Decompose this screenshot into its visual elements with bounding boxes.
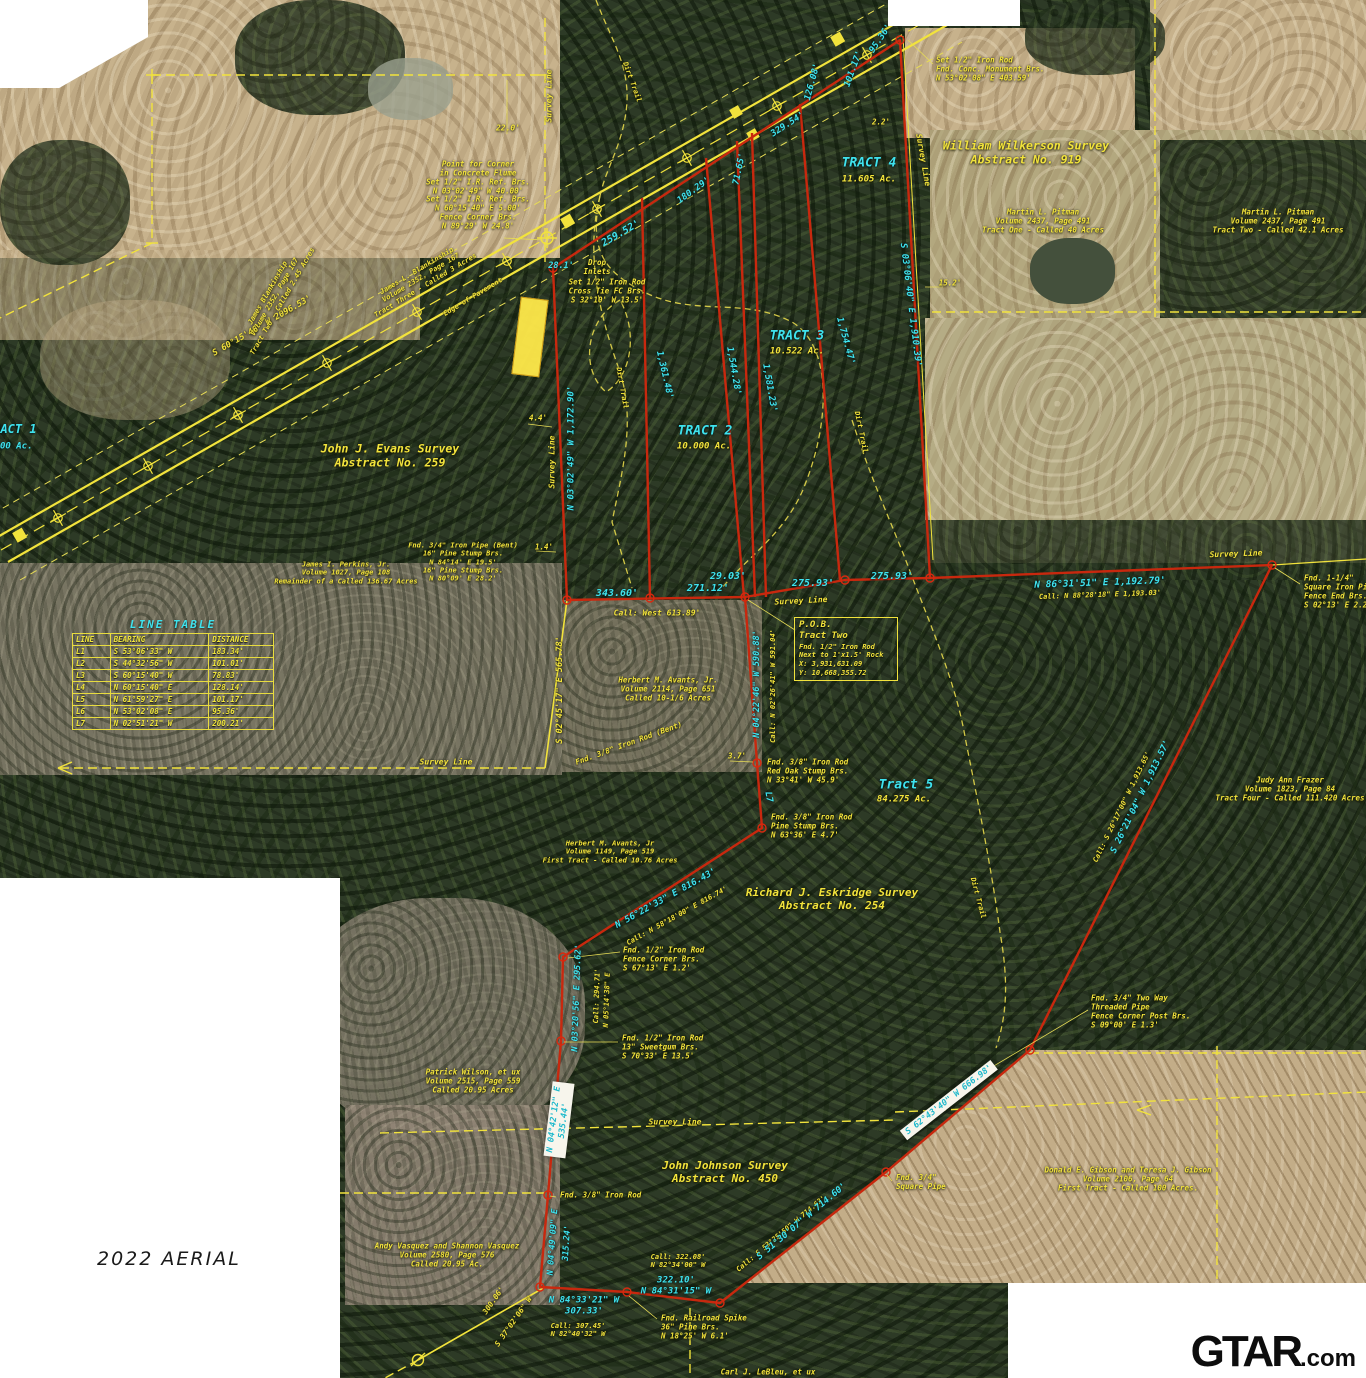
map-annotations: Survey Line22.0'Point for Cornerin Concr… — [0, 0, 1366, 1378]
note-fnd-34-square-pipe: Fnd. 3/4"Square Pipe — [896, 1174, 946, 1192]
dim-180-29: 180.29' — [676, 176, 713, 207]
note-set-rod-cross-tie: Set 1/2" Iron RodCross Tie FC Brs.S 32°1… — [569, 279, 646, 306]
note-frazer: Judy Ann FrazerVolume 1823, Page 84Tract… — [1215, 777, 1364, 804]
dim-1172-90: N 03°02'49" W 1,172.90' — [567, 386, 578, 511]
dim-590-88: N 04°22'46" W 590.88' — [752, 630, 762, 737]
survey-line-label-s1: Survey Line — [649, 1117, 702, 1126]
note-call-591-04: Call: N 02°26'41" W 591.04' — [769, 629, 777, 743]
survey-line-label-east: Survey Line — [914, 133, 932, 187]
label-dirt-trail-4: Dirt Trail — [969, 877, 988, 920]
dim-343-60: 343.60' — [596, 588, 638, 600]
note-wilson: Patrick Wilson, et uxVolume 2515, Page 5… — [426, 1069, 521, 1096]
dim-126-08: 126.08' — [803, 62, 823, 101]
survey-line-label-east2: Survey Line — [1209, 548, 1262, 559]
dim-101-17: 101.17' — [843, 49, 866, 88]
label-johnson-survey: John Johnson SurveyAbstract No. 450 — [662, 1160, 788, 1186]
note-railroad-spike: Fnd. Railroad Spike36" Pine Brs.N 18°25'… — [661, 1315, 747, 1342]
dim-n04-49-09: N 04°49'09" E — [546, 1208, 561, 1275]
dim-71-65: 71.65' — [731, 152, 748, 186]
aerial-caption: 2022 AERIAL — [97, 1248, 241, 1270]
label-tract-5: Tract 5 — [879, 777, 934, 792]
note-gibson: Donald E. Gibson and Teresa J. GibsonVol… — [1044, 1167, 1211, 1194]
label-dirt-trail-1: Dirt Trail — [621, 61, 643, 103]
dim-714-60: S 51°30'07" W 714.60' — [755, 1181, 849, 1262]
note-drop-inlets: DropInlets — [583, 259, 610, 277]
note-call-1193-03: Call: N 88°28'18" E 1,193.03' — [1039, 589, 1161, 602]
dim-1910-39: S 03°06'40" E 1,910.39' — [897, 243, 923, 368]
note-pitman-tract-two: Martin L. PitmanVolume 2437, Page 491Tra… — [1213, 209, 1344, 236]
dim-29-03: 29.03' — [710, 571, 746, 583]
label-tract-1: TRACT 1 — [0, 422, 37, 436]
dim-1754-47: 1,754.47' — [834, 316, 857, 366]
note-vasquez: Andy Vasquez and Shannon VasquezVolume 2… — [375, 1243, 520, 1270]
note-fnd-12-fence-corner: Fnd. 1/2" Iron RodFence Corner Brs.S 67°… — [623, 947, 704, 974]
note-pitman-tract-one: Martin L. PitmanVolume 2437, Page 491Tra… — [982, 209, 1104, 236]
survey-line-label-top: Survey Line — [544, 70, 553, 123]
note-call-322-08: Call: 322.08'N 82°34'00" W — [651, 1253, 706, 1270]
dim-22-0: 22.0' — [496, 123, 520, 132]
label-wilkerson-survey: William Wilkerson SurveyAbstract No. 919 — [943, 139, 1109, 166]
dim-1361-48: 1,361.48' — [653, 350, 674, 400]
dim-3-7: 3.7' — [728, 753, 746, 762]
note-fnd-38-pine: Fnd. 3/8" Iron RodPine Stump Brs.N 63°36… — [771, 814, 852, 841]
label-tract-1-acres: 00 Ac. — [0, 442, 33, 453]
note-point-for-corner: Point for Cornerin Concrete FlumeSet 1/2… — [426, 161, 530, 232]
aerial-survey-map: LINE TABLE LINE BEARING DISTANCE L1S 53°… — [0, 0, 1366, 1378]
dim-565-78: S 02°45'17" E 565.78' — [555, 636, 565, 743]
label-tract-5-acres: 84.275 Ac. — [877, 795, 931, 806]
label-tract-2: TRACT 2 — [678, 423, 733, 438]
note-call-west: Call: West 613.89' — [614, 608, 701, 617]
dim-329-54: 329.54' — [769, 110, 807, 140]
dim-1-4: 1.4' — [535, 544, 553, 553]
note-call-294-71: Call: 294.71' — [592, 968, 602, 1023]
label-tract-2-acres: 10.000 Ac. — [677, 442, 731, 453]
dim-259-52: 259.52' — [600, 218, 642, 249]
note-fnd-12-sweetgum: Fnd. 1/2" Iron Rod13" Sweetgum Brs.S 70°… — [622, 1035, 703, 1062]
note-fnd-114-square: Fnd. 1-1/4"Square Iron PipeFence End Brs… — [1304, 574, 1366, 609]
note-avants-1149: Herbert M. Avants, JrVolume 1149, Page 5… — [543, 840, 678, 865]
dim-4-4: 4.4' — [529, 415, 547, 424]
note-lebleu: Carl J. LeBleu, et ux — [721, 1369, 816, 1378]
note-perkins: James I. Perkins, Jr.Volume 1027, Page 1… — [274, 561, 417, 586]
gtar-logo-main: GTAR — [1191, 1327, 1300, 1376]
label-dirt-trail-2: Dirt Trail — [614, 367, 629, 410]
label-tract-4-acres: 11.605 Ac. — [842, 175, 896, 186]
label-dirt-trail-3: Dirt Trail — [853, 411, 870, 454]
dim-2-2: 2.2' — [872, 119, 890, 128]
sticker-dim-535-44: N 04°42'12" E535.44' — [544, 1082, 575, 1159]
dim-1544-28: 1,544.28' — [724, 346, 743, 396]
dim-95-36: 95.36' — [868, 23, 895, 56]
note-avants-2114: Herbert M. Avants, Jr.Volume 2114, Page … — [618, 677, 717, 704]
dim-s37-02-06: S 37°02'06" W — [494, 1295, 535, 1348]
survey-line-label-s2: Survey Line — [420, 757, 473, 766]
dim-28-1: 28.1' — [548, 261, 574, 271]
dim-275-93-a: 275.93' — [792, 578, 834, 590]
survey-line-label-pob: Survey Line — [774, 595, 827, 607]
gtar-logo-suffix: .com — [1300, 1345, 1356, 1372]
survey-line-label-west: Survey Line — [547, 436, 556, 489]
dim-271-12: 271.12' — [687, 583, 729, 595]
note-call-n05: N 05°14'38" E — [602, 972, 612, 1027]
label-tract-3: TRACT 3 — [770, 328, 825, 343]
dim-307-33: N 84°33'21" W307.33' — [549, 1295, 619, 1316]
label-evans-survey: John J. Evans SurveyAbstract No. 259 — [321, 442, 459, 469]
note-set-iron-rod-monument: Set 1/2" Iron RodFnd. Conc. Monument Brs… — [936, 57, 1044, 84]
gtar-logo: GTAR.com — [1191, 1330, 1356, 1374]
note-fnd-38-rod-south: Fnd. 3/8" Iron Rod — [560, 1192, 641, 1201]
dim-295-62: N 03°20'56" E 295.62' — [570, 944, 584, 1052]
dim-322-10: 322.10'N 84°31'15" W — [641, 1275, 711, 1296]
label-tract-3-acres: 10.522 Ac. — [770, 347, 824, 358]
dim-300-06: 300.06' — [481, 1286, 506, 1317]
note-fnd-iron-pipe-bent: Fnd. 3/4" Iron Pipe (Bent)16" Pine Stump… — [408, 541, 518, 582]
dim-315-24: 315.24' — [561, 1225, 573, 1261]
note-call-307-45: Call: 307.45'N 82°40'32" W — [551, 1322, 606, 1339]
note-fnd-two-way-pipe: Fnd. 3/4" Two WayThreaded PipeFence Corn… — [1091, 994, 1190, 1029]
note-fnd-38-rod-bent: Fnd. 3/8" Iron Rod (Bent) — [574, 721, 683, 768]
label-edge-of-pavement: Edge of Pavement — [442, 276, 504, 318]
dim-275-93-b: 275.93' — [871, 571, 913, 583]
note-fnd-38-red-oak: Fnd. 3/8" Iron RodRed Oak Stump Brs.N 33… — [767, 759, 848, 786]
dim-15-2: 15.2' — [939, 280, 962, 289]
sticker-dim-666-98: S 62°43'40" W 666.98' — [900, 1060, 998, 1141]
dim-1581-23: 1,581.23' — [760, 363, 779, 413]
label-tract-4: TRACT 4 — [842, 155, 897, 170]
label-eskridge-survey: Richard J. Eskridge SurveyAbstract No. 2… — [746, 887, 918, 913]
label-l7: L7 — [762, 791, 774, 804]
